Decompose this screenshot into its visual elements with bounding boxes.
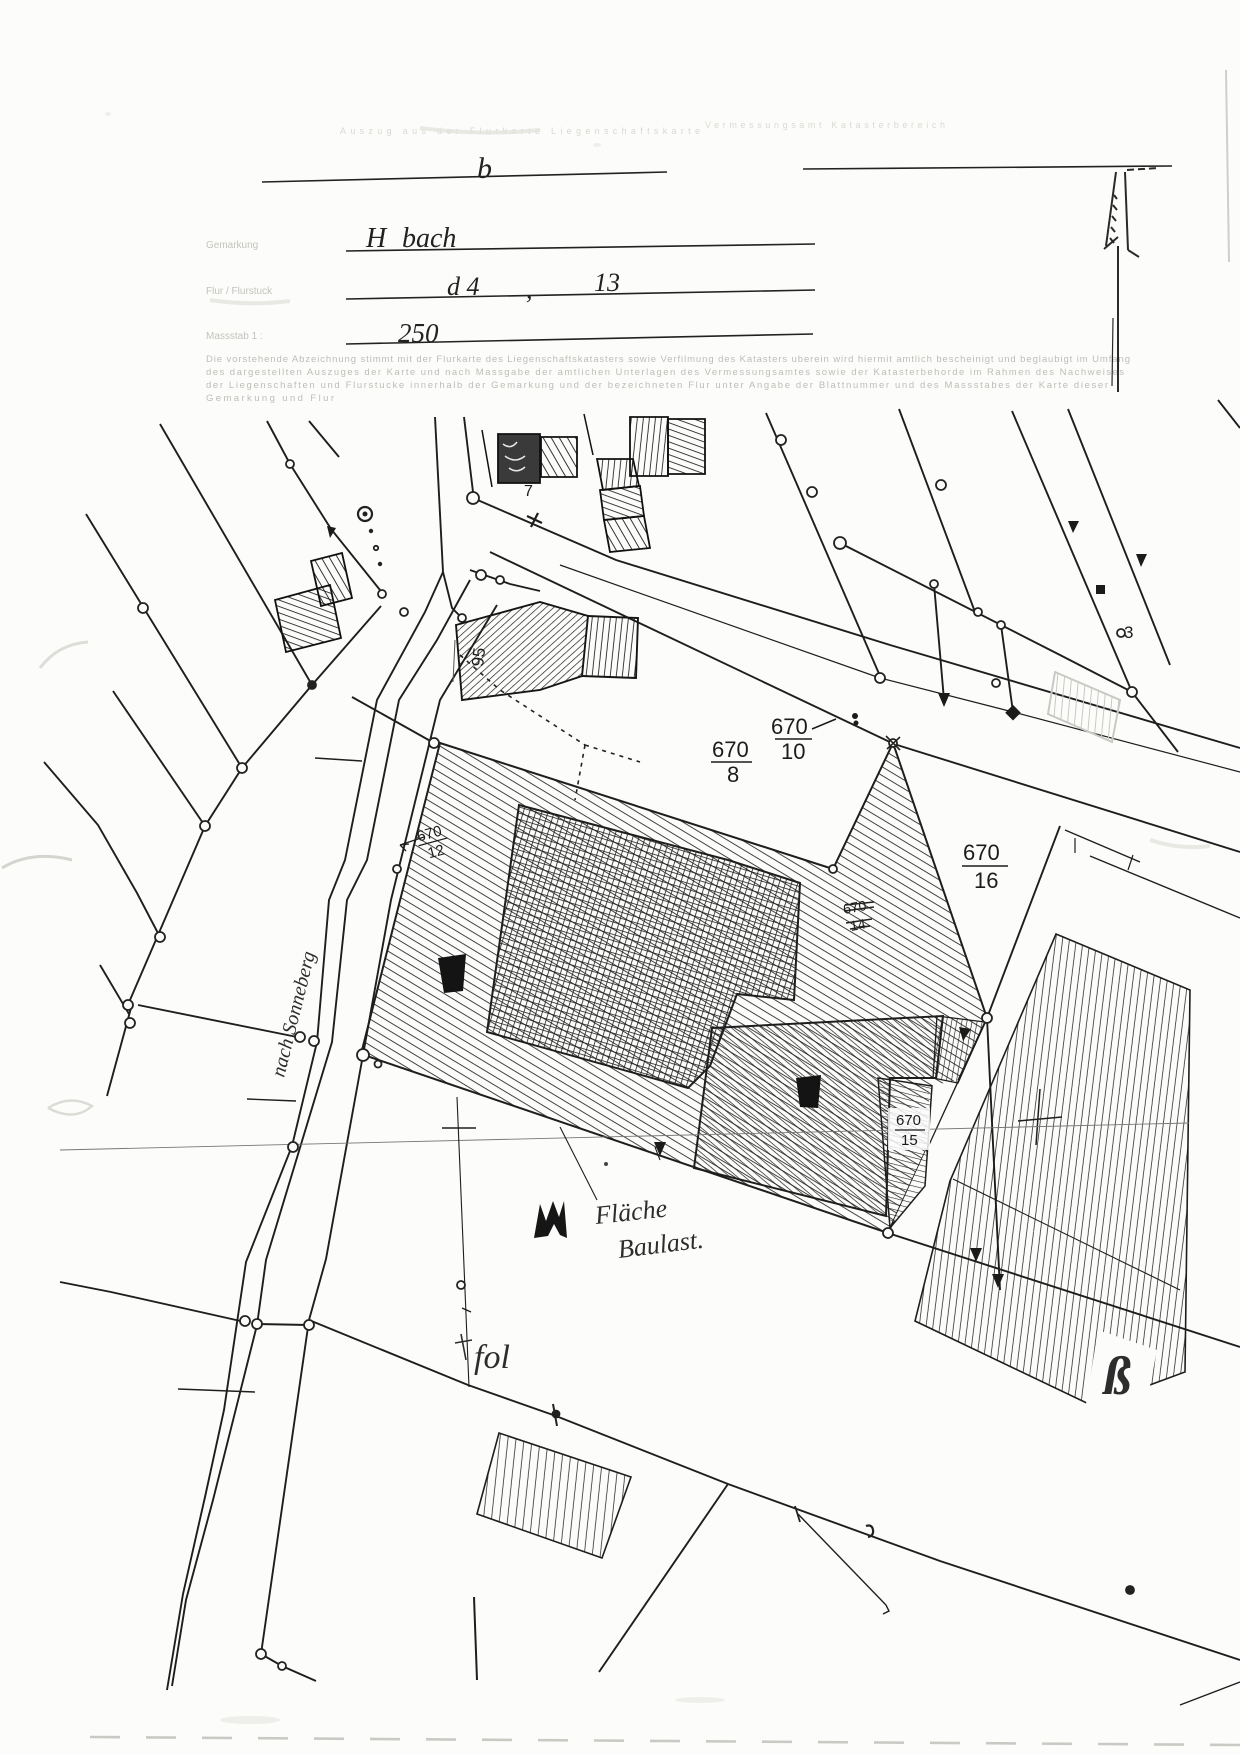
svg-text:670: 670 — [896, 1112, 921, 1129]
svg-text:7: 7 — [524, 483, 533, 500]
svg-text:3: 3 — [1124, 623, 1133, 642]
svg-text:670: 670 — [712, 737, 749, 762]
svg-text:16: 16 — [974, 868, 998, 893]
svg-text:15: 15 — [901, 1132, 918, 1149]
svg-text:Gemarkung: Gemarkung — [206, 240, 258, 251]
svg-text:13: 13 — [594, 268, 620, 297]
svg-text:250: 250 — [398, 318, 439, 348]
svg-text:d 4: d 4 — [447, 272, 480, 301]
svg-text:Gemarkung und Flur: Gemarkung und Flur — [206, 393, 334, 404]
svg-text:10: 10 — [781, 739, 805, 764]
svg-text:ß: ß — [1102, 1346, 1131, 1406]
svg-text:670: 670 — [771, 714, 808, 739]
svg-text:670: 670 — [963, 840, 1000, 865]
svg-text:H: H — [365, 223, 388, 254]
svg-text:Massstab 1 :: Massstab 1 : — [206, 331, 263, 342]
svg-text:des dargestellten Auszuges der: des dargestellten Auszuges der Karte und… — [206, 367, 1124, 378]
svg-text:bach: bach — [402, 223, 456, 254]
svg-text:Die vorstehende Abzeichnung st: Die vorstehende Abzeichnung stimmt mit d… — [206, 354, 1130, 365]
svg-text:fol: fol — [474, 1339, 510, 1376]
svg-text:8: 8 — [727, 762, 739, 787]
svg-text:b: b — [477, 152, 492, 185]
svg-text:14: 14 — [849, 915, 867, 933]
svg-text:Flur / Flurstuck: Flur / Flurstuck — [206, 286, 273, 297]
svg-text:,: , — [526, 275, 533, 304]
svg-text:95: 95 — [468, 647, 489, 668]
